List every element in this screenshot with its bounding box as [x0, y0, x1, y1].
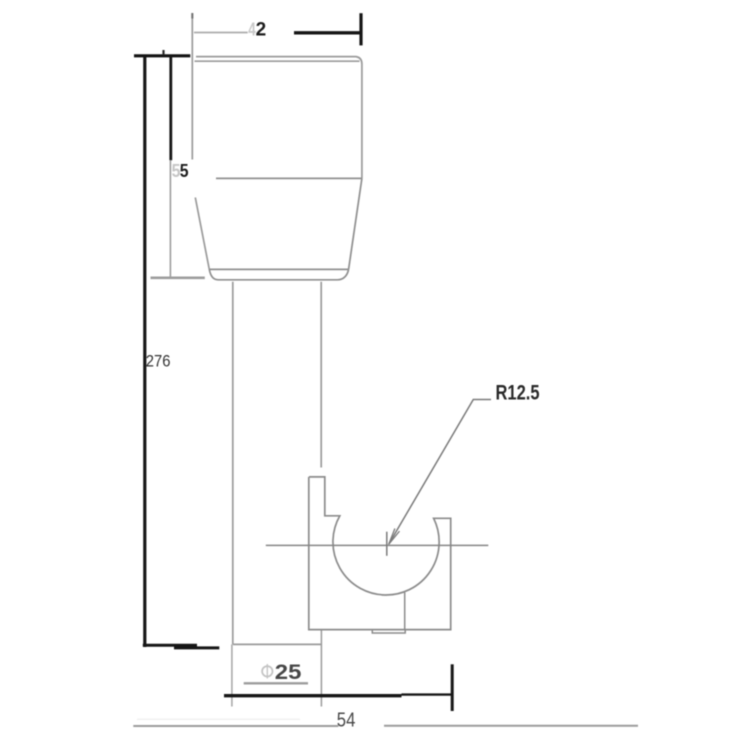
- svg-text:R12.5: R12.5: [496, 382, 540, 405]
- svg-text:276: 276: [146, 352, 171, 370]
- svg-text:54: 54: [337, 709, 356, 731]
- svg-text:5: 5: [180, 161, 189, 181]
- svg-text:25: 25: [275, 661, 302, 684]
- svg-text:2: 2: [256, 20, 267, 41]
